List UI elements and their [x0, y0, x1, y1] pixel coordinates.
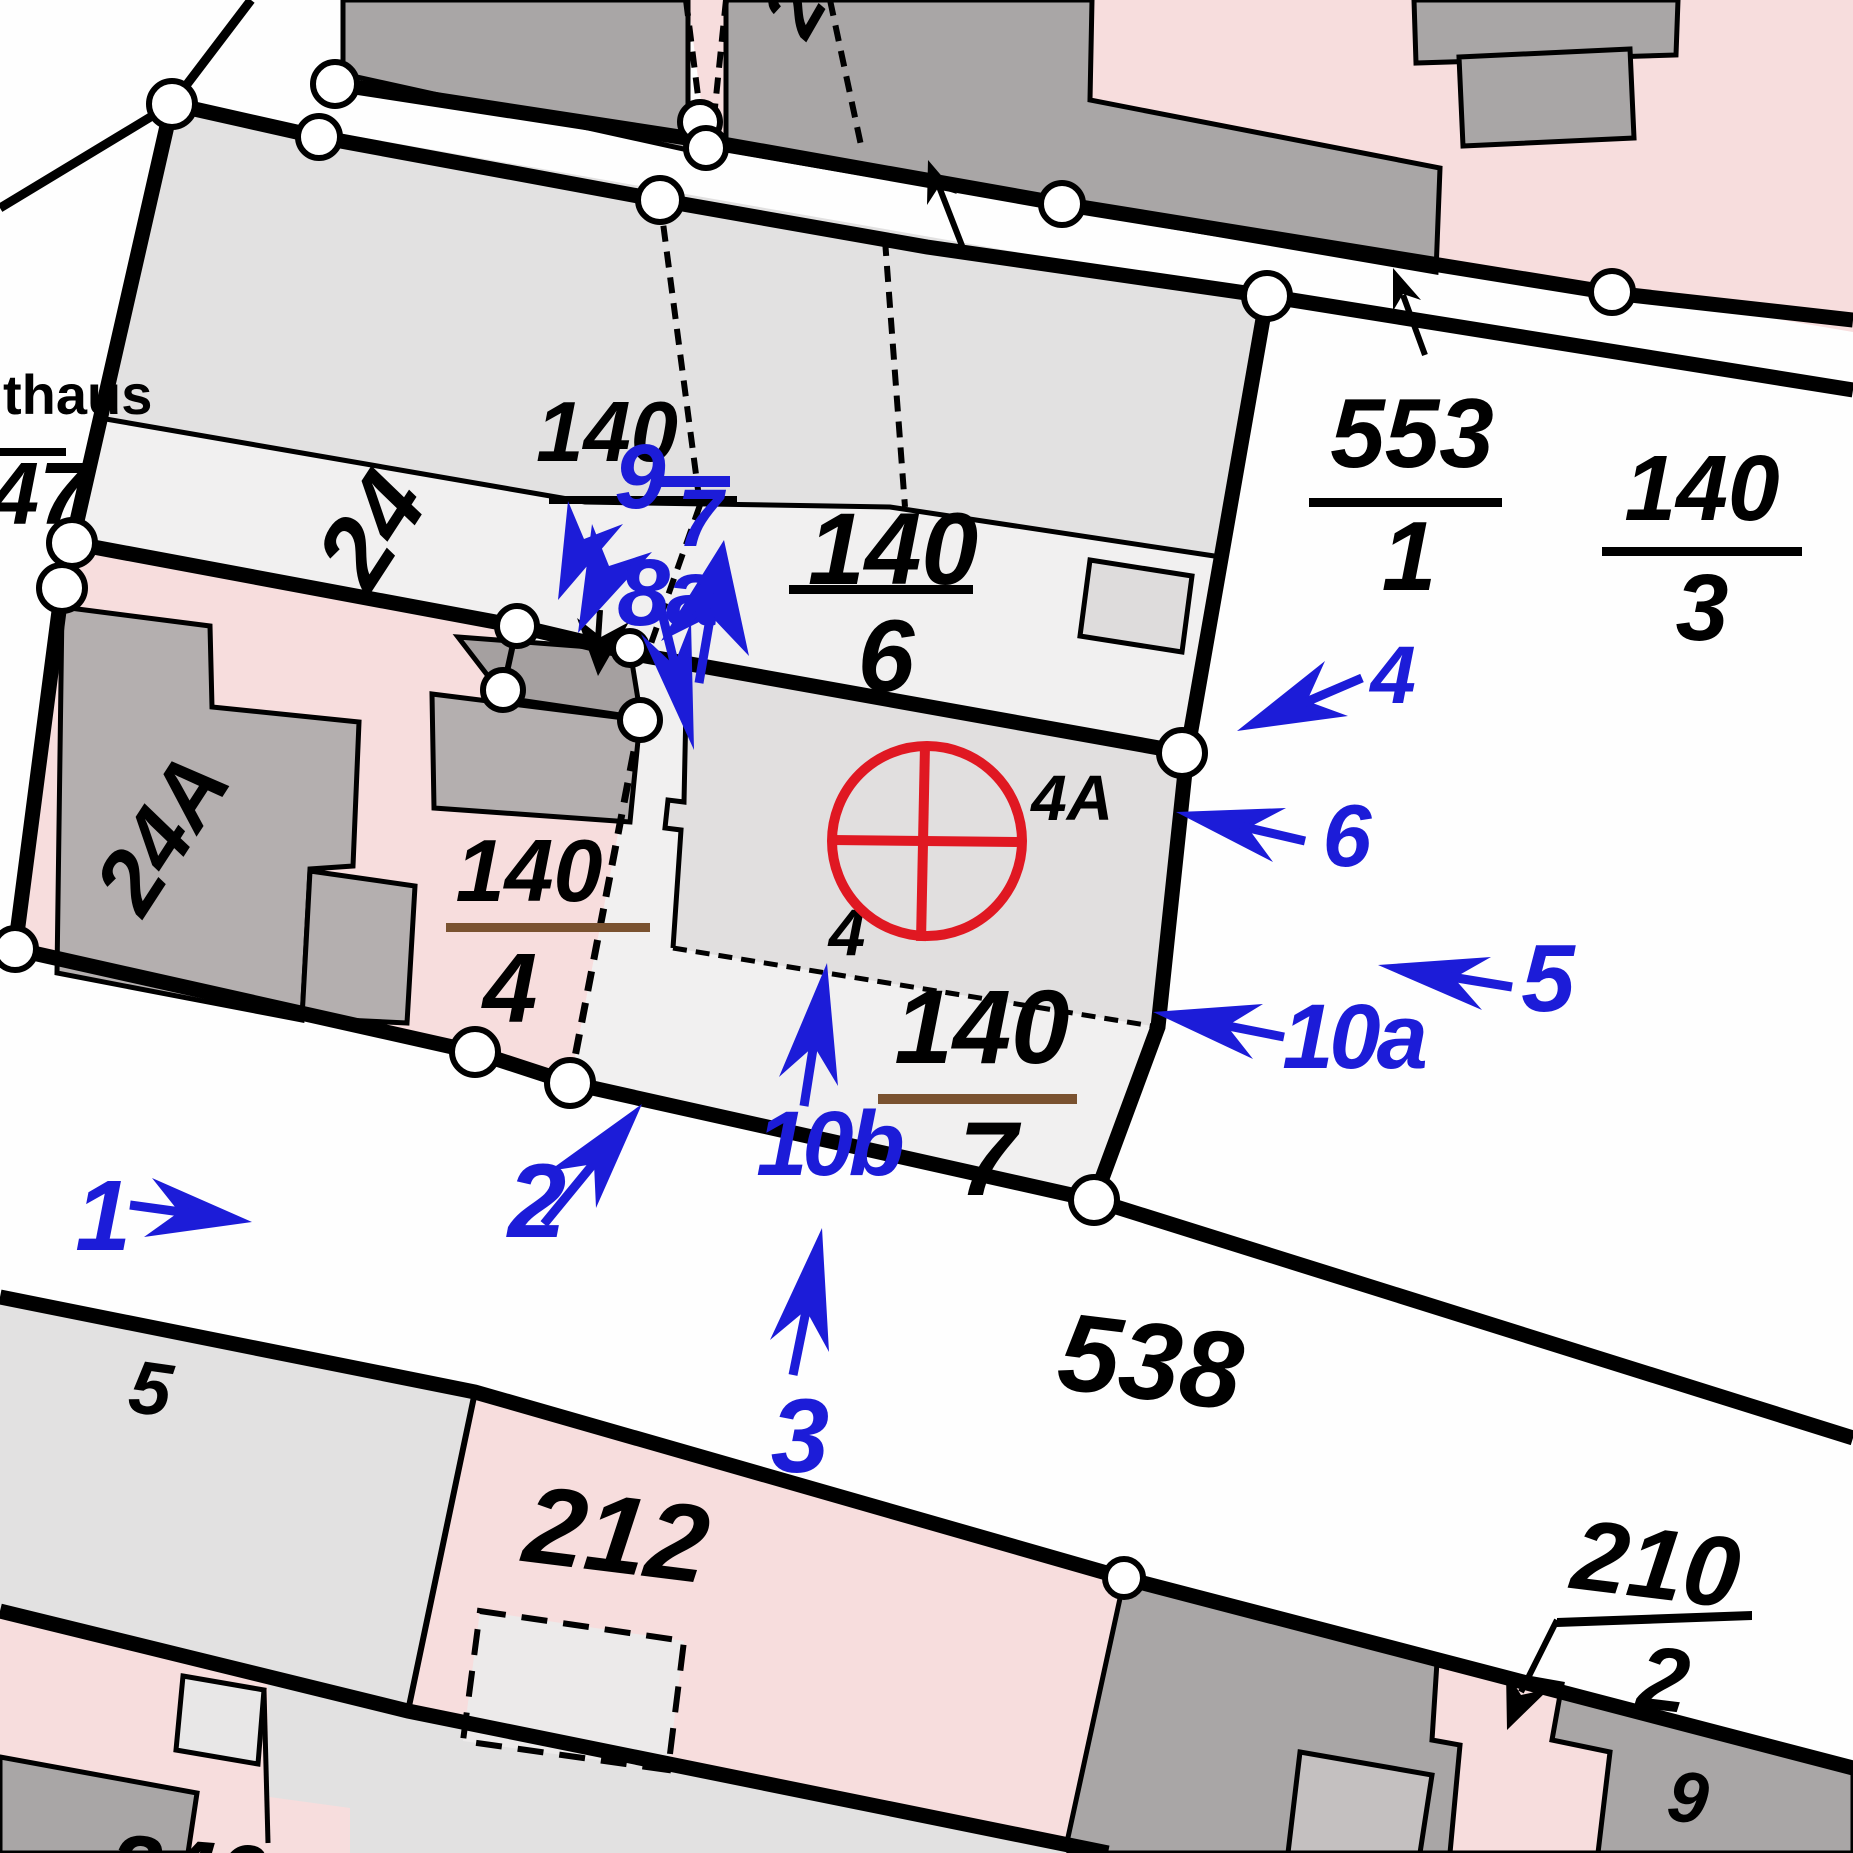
svg-text:6: 6	[858, 599, 916, 713]
svg-text:4A: 4A	[1029, 762, 1113, 834]
svg-text:553: 553	[1330, 378, 1494, 488]
svg-text:4: 4	[481, 933, 538, 1043]
svg-text:3: 3	[771, 1378, 829, 1495]
svg-text:10a: 10a	[1282, 986, 1425, 1088]
svg-text:2: 2	[506, 1143, 566, 1260]
svg-text:538: 538	[1052, 1290, 1250, 1435]
svg-text:1: 1	[1382, 501, 1437, 611]
svg-text:47: 47	[0, 444, 92, 543]
svg-text:7: 7	[677, 473, 726, 564]
svg-text:1: 1	[75, 1160, 131, 1272]
svg-text:212: 212	[516, 1462, 715, 1607]
svg-text:6: 6	[1323, 786, 1373, 885]
svg-text:140: 140	[456, 821, 603, 920]
svg-text:140: 140	[1624, 436, 1779, 540]
svg-text:210: 210	[1565, 1498, 1746, 1630]
svg-text:5: 5	[1521, 925, 1576, 1032]
svg-text:4: 4	[1368, 630, 1416, 721]
svg-text:140: 140	[894, 969, 1069, 1086]
svg-text:7: 7	[959, 1101, 1022, 1218]
svg-text:10b: 10b	[756, 1093, 902, 1195]
svg-text:thaus: thaus	[3, 363, 152, 426]
svg-text:3: 3	[1676, 555, 1729, 661]
